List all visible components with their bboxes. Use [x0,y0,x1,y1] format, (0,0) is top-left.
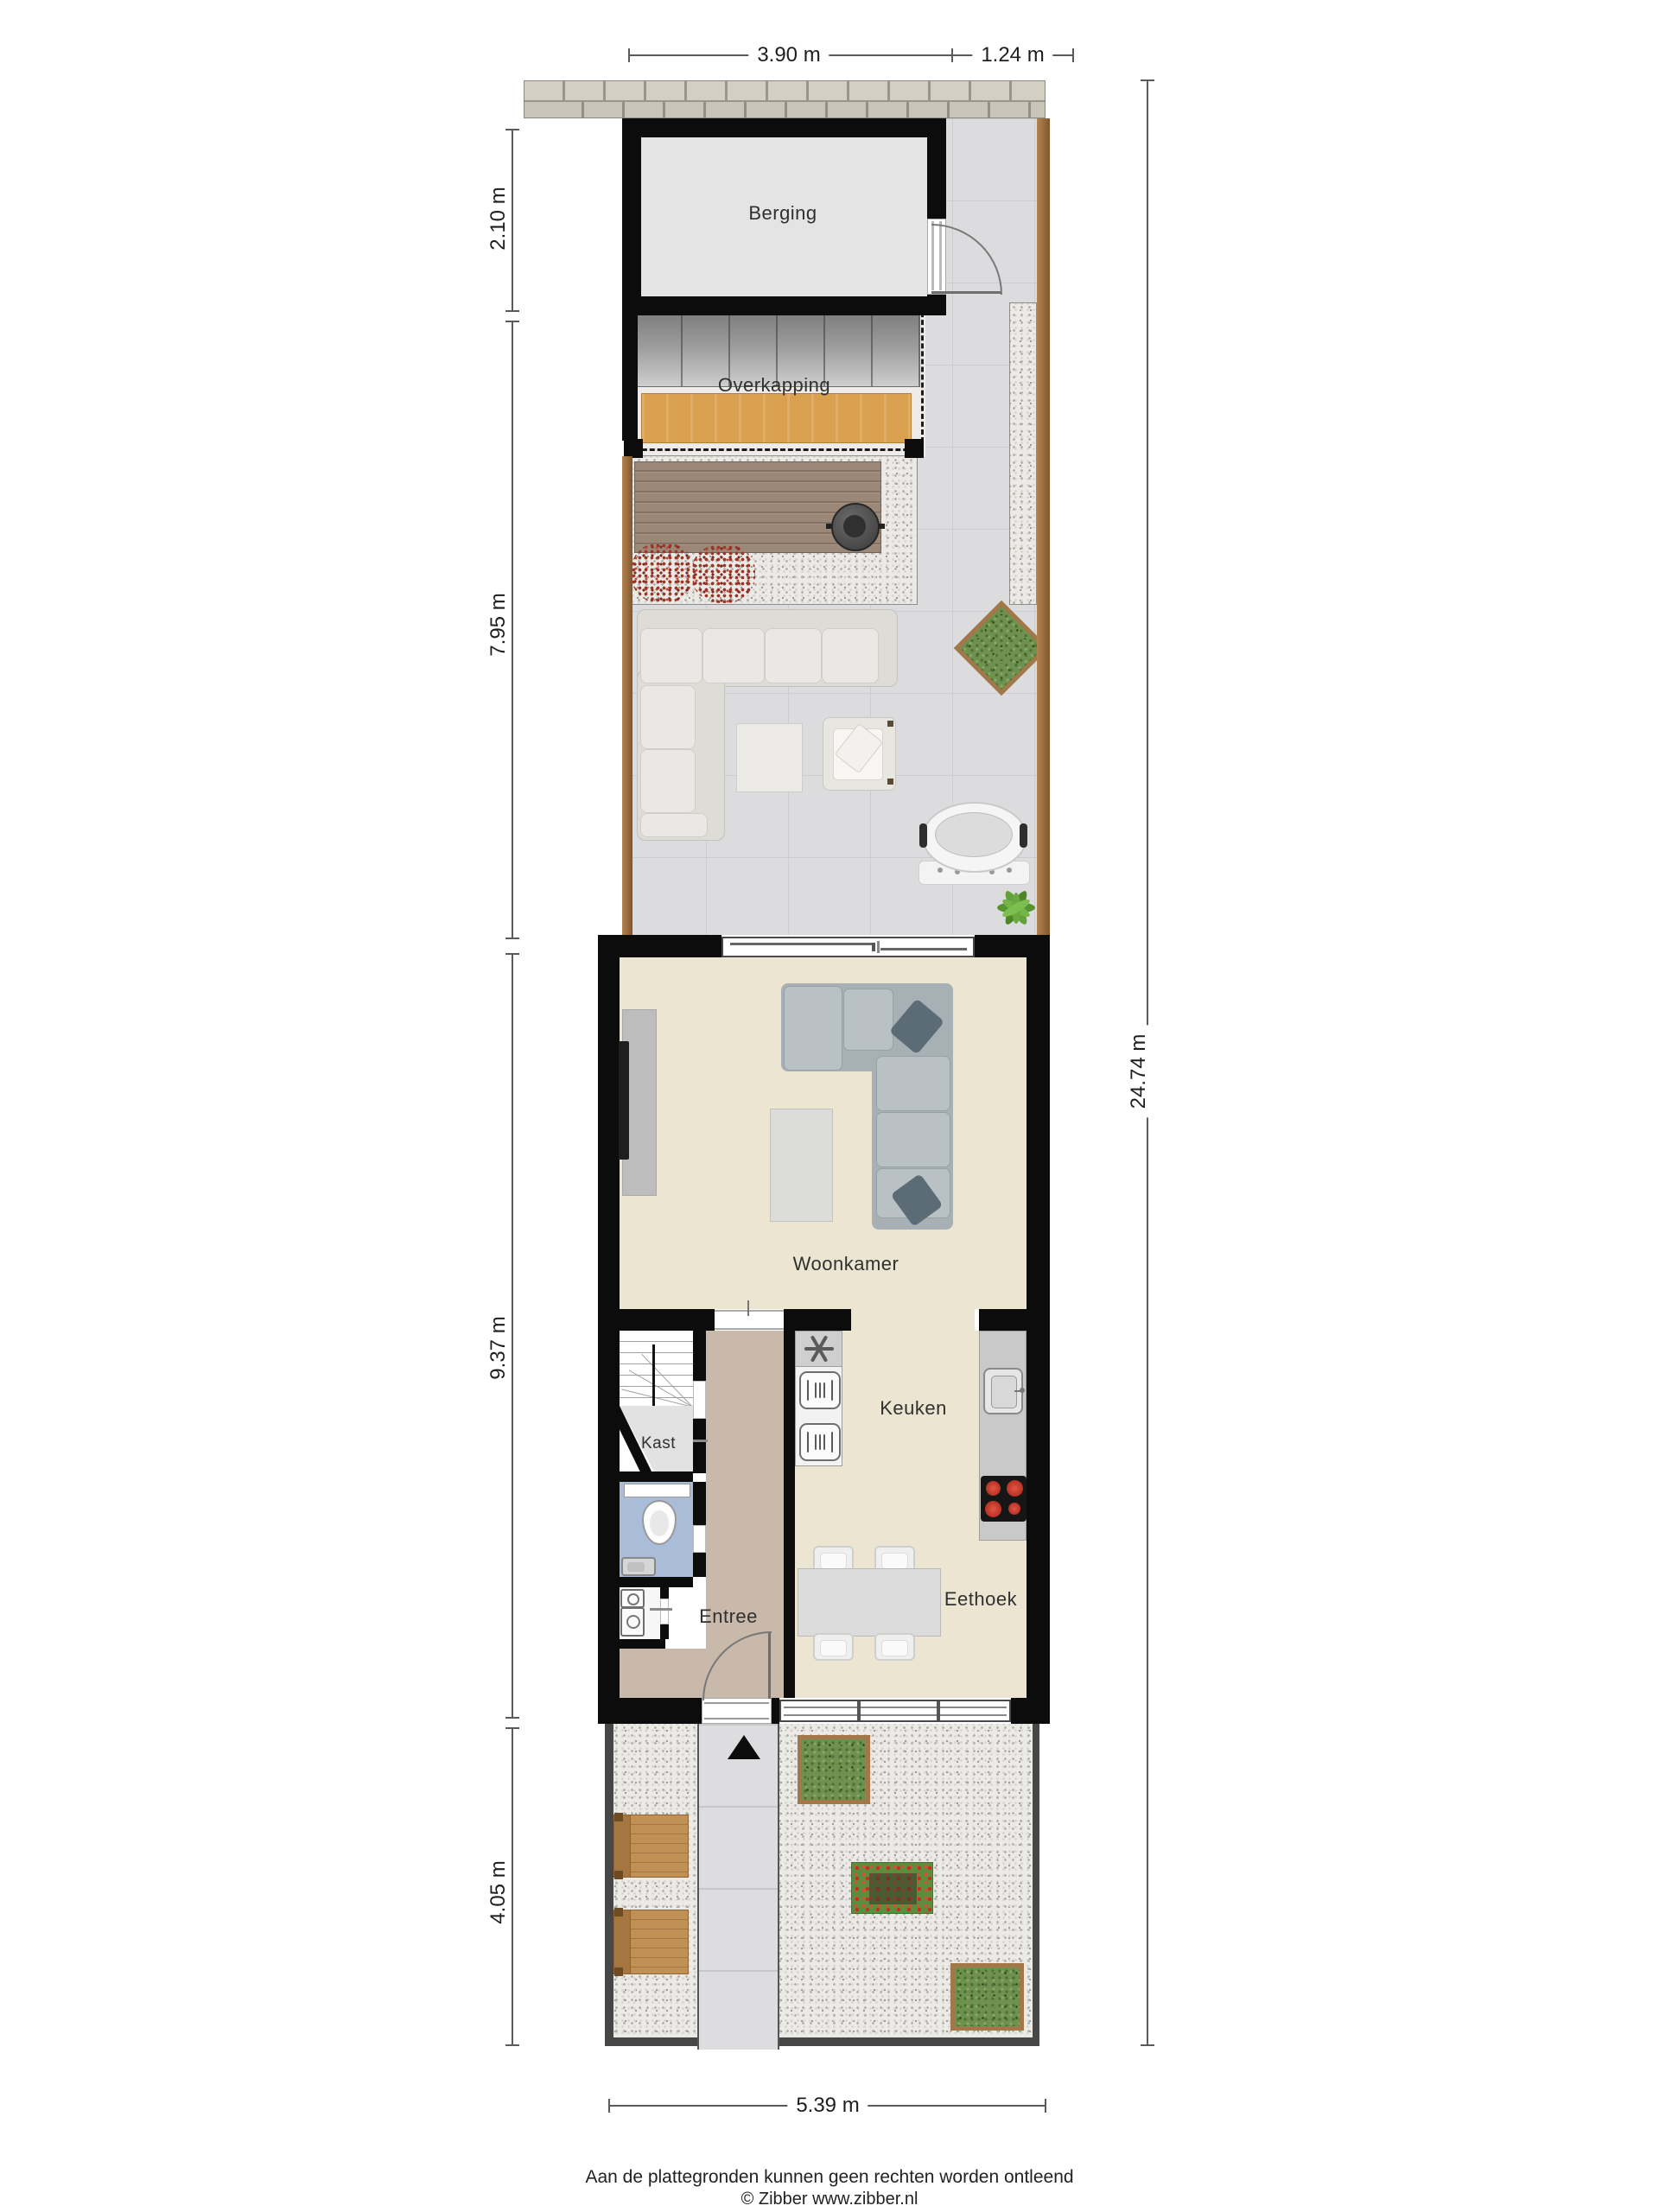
stairs-wall [693,1331,706,1381]
gravel-strip-right [1009,302,1037,605]
garden-fence-right [1037,118,1050,935]
stairs-wall [693,1419,706,1473]
entree-keuken-wall [784,1309,795,1698]
garden-bench [613,1815,689,1878]
room-label-eethoek: Eethoek [944,1588,1017,1611]
dim-bottom-width: 5.39 m [787,2094,868,2118]
washer-icon [620,1589,645,1608]
oven-icon [799,1371,841,1409]
dim-left-berging: 2.10 m [486,178,511,258]
overkapping-wall [622,296,638,441]
room-label-kast: Kast [641,1434,676,1453]
terrace-coffee-table [736,723,803,792]
kitchen-sink-icon [983,1368,1023,1414]
front-planter [798,1735,870,1804]
front-planter [950,1963,1024,2031]
floorplan-page: 3.90 m 1.24 m 2.10 m 7.95 m 9.37 m 4.05 … [0,0,1659,2212]
overkapping-boundary [921,296,924,442]
dining-table [798,1568,941,1637]
toilet-sink-icon [621,1557,656,1576]
entrance-arrow-icon [728,1735,760,1759]
garden-bench [613,1910,689,1974]
front-fence-bottom [605,2037,1039,2046]
front-fence-left [605,1724,613,2046]
passage-woonkamer-entree [715,1309,788,1331]
red-bush [631,543,695,603]
red-bush [691,544,755,603]
house-wall-bottom-a [598,1698,702,1724]
stairs-direction-arrow [652,1344,655,1410]
keuken-floor-passage [851,1309,975,1331]
living-coffee-table [770,1109,833,1222]
sliding-door [721,937,975,957]
interior-wall [620,1471,693,1482]
washer-icon [620,1607,645,1637]
house-wall-right [1027,935,1050,1724]
oven-icon [799,1423,841,1461]
room-label-keuken: Keuken [880,1397,947,1420]
dim-top-main: 3.90 m [748,43,829,67]
interior-wall [620,1309,715,1331]
cooktop-icon [981,1476,1027,1522]
eethoek-window [779,1700,1011,1722]
tv-icon [619,1041,629,1160]
room-label-berging: Berging [748,202,817,225]
front-door-opening [702,1698,772,1724]
stairs-door [693,1381,706,1419]
footer-copyright: © Zibber www.zibber.nl [0,2190,1659,2209]
room-label-overkapping: Overkapping [718,374,830,397]
overkapping-post [905,439,924,458]
interior-wall [788,1309,851,1331]
room-label-entree: Entree [699,1605,758,1628]
flower-bed [851,1862,933,1914]
dim-left-house: 9.37 m [486,1307,511,1388]
front-fence-right [1033,1724,1039,2046]
bbq-grill [831,503,880,551]
overkapping-boundary [634,448,924,451]
house-wall-left [598,935,620,1724]
dim-left-garden: 7.95 m [486,584,511,664]
utility-door-tick [650,1608,672,1611]
brick-paving [524,80,1046,118]
interior-wall [979,1309,1027,1331]
toilet-door [693,1525,706,1553]
dim-top-side: 1.24 m [972,43,1052,67]
overkapping-post [624,439,643,458]
house-wall-bottom-b [772,1698,779,1724]
dim-right-total: 24.74 m [1127,1026,1151,1118]
garden-table [641,393,912,443]
garden-path [697,1724,779,2050]
footer-disclaimer: Aan de plattegronden kunnen geen rechten… [0,2167,1659,2188]
room-label-woonkamer: Woonkamer [793,1253,899,1275]
utility-door [660,1599,669,1624]
dim-left-front: 4.05 m [486,1852,511,1932]
garden-fence-left [622,456,632,935]
house-wall-bottom-c [1011,1698,1050,1724]
